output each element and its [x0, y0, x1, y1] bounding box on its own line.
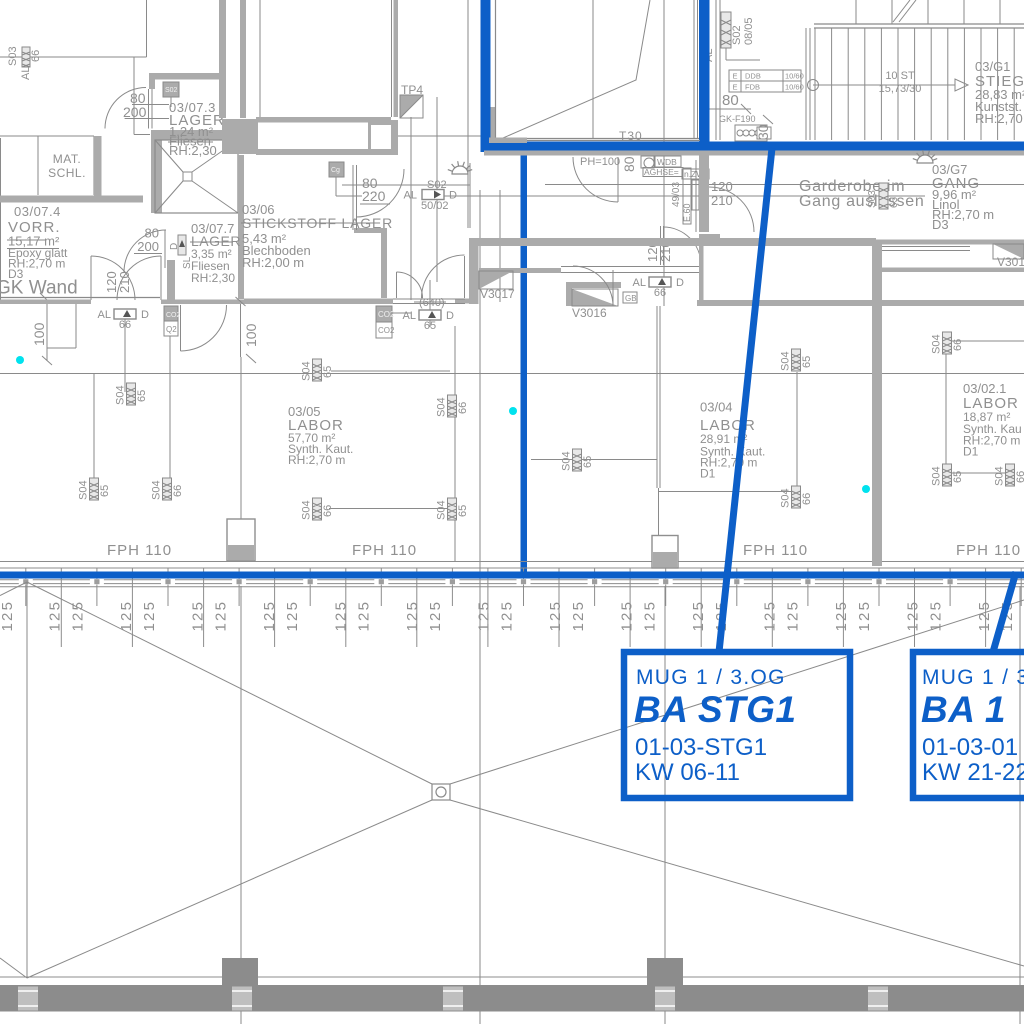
svg-text:125: 125	[690, 600, 707, 632]
svg-text:D: D	[141, 309, 149, 321]
svg-text:66: 66	[654, 287, 666, 299]
svg-text:RH:2,30: RH:2,30	[169, 143, 217, 158]
svg-text:10 ST: 10 ST	[885, 70, 915, 82]
svg-text:S04: S04	[78, 480, 90, 500]
svg-text:MUG 1 / 3.OG: MUG 1 / 3.OG	[636, 666, 786, 689]
svg-text:65: 65	[322, 366, 334, 378]
svg-text:125: 125	[47, 600, 64, 632]
svg-text:MUG 1 / 3: MUG 1 / 3	[922, 666, 1024, 689]
svg-text:FPH 110: FPH 110	[352, 542, 417, 559]
svg-text:66: 66	[172, 485, 184, 497]
svg-text:Gang auslassen: Gang auslassen	[799, 193, 924, 210]
svg-text:RH:2,70 m: RH:2,70 m	[975, 111, 1024, 126]
svg-text:66: 66	[457, 402, 469, 414]
svg-text:S04: S04	[994, 466, 1006, 486]
svg-text:S04: S04	[780, 351, 792, 371]
svg-text:125: 125	[905, 600, 922, 632]
svg-text:125: 125	[785, 600, 802, 632]
svg-text:D: D	[449, 190, 457, 202]
svg-text:V3013: V3013	[997, 255, 1024, 269]
svg-text:E: E	[732, 72, 737, 81]
svg-text:125: 125	[856, 600, 873, 632]
svg-text:PH=100: PH=100	[580, 156, 620, 168]
svg-text:66: 66	[801, 493, 813, 505]
svg-text:125: 125	[190, 600, 207, 632]
svg-text:220: 220	[362, 188, 386, 204]
svg-text:200: 200	[137, 239, 159, 254]
svg-text:08/05: 08/05	[743, 17, 755, 45]
svg-text:125: 125	[833, 600, 850, 632]
svg-text:KW 21-22: KW 21-22	[922, 759, 1024, 786]
svg-text:AL: AL	[20, 67, 32, 80]
svg-text:S04: S04	[931, 334, 943, 354]
svg-text:S04: S04	[436, 397, 448, 417]
svg-text:S04: S04	[151, 480, 163, 500]
svg-text:03/G1: 03/G1	[975, 59, 1010, 74]
svg-text:65: 65	[889, 196, 900, 208]
svg-text:66: 66	[322, 505, 334, 517]
svg-text:30: 30	[755, 124, 771, 140]
svg-text:66: 66	[119, 319, 131, 331]
svg-text:03/07.4: 03/07.4	[14, 204, 61, 219]
svg-text:66: 66	[30, 50, 42, 62]
svg-text:S04: S04	[931, 466, 943, 486]
svg-text:FPH 110: FPH 110	[743, 542, 808, 559]
svg-text:CO2: CO2	[378, 310, 395, 319]
svg-text:210: 210	[117, 271, 132, 293]
svg-text:80: 80	[621, 156, 637, 172]
svg-text:125: 125	[499, 600, 516, 632]
svg-text:15,73/30: 15,73/30	[879, 83, 922, 95]
svg-text:MAT.: MAT.	[53, 152, 81, 166]
svg-text:D1: D1	[700, 467, 716, 481]
svg-text:S04: S04	[561, 451, 573, 471]
svg-text:FPH 110: FPH 110	[956, 542, 1021, 559]
svg-text:AL: AL	[98, 309, 111, 321]
svg-text:65: 65	[582, 456, 594, 468]
svg-text:E: E	[732, 83, 737, 92]
svg-text:125: 125	[762, 600, 779, 632]
svg-text:S04: S04	[780, 488, 792, 508]
svg-text:Cg: Cg	[331, 167, 340, 174]
svg-text:Q2: Q2	[166, 325, 177, 334]
svg-text:S04: S04	[115, 385, 127, 405]
svg-text:65: 65	[952, 471, 964, 483]
svg-text:RH:2,70 m: RH:2,70 m	[288, 453, 345, 467]
svg-text:50/02: 50/02	[421, 200, 449, 212]
svg-text:125: 125	[284, 600, 301, 632]
svg-text:100: 100	[31, 322, 47, 346]
svg-text:SCHL.: SCHL.	[48, 166, 86, 180]
svg-text:AL: AL	[403, 310, 416, 322]
svg-text:S03: S03	[7, 46, 19, 66]
svg-text:10/60: 10/60	[785, 72, 804, 81]
svg-text:125: 125	[404, 600, 421, 632]
svg-text:125: 125	[0, 600, 16, 632]
svg-text:GB: GB	[625, 294, 637, 303]
svg-text:D: D	[676, 277, 684, 289]
svg-text:FPH 110: FPH 110	[107, 542, 172, 559]
svg-text:GK-F190: GK-F190	[719, 114, 756, 124]
svg-text:RH:2,00 m: RH:2,00 m	[242, 255, 304, 270]
svg-text:125: 125	[118, 600, 135, 632]
svg-text:D: D	[446, 310, 454, 322]
svg-text:CO2: CO2	[166, 312, 181, 319]
svg-text:125: 125	[570, 600, 587, 632]
svg-text:10/60: 10/60	[785, 83, 804, 92]
svg-text:S04: S04	[301, 361, 313, 381]
svg-text:200: 200	[123, 104, 147, 120]
svg-text:BA 1: BA 1	[921, 689, 1006, 730]
svg-text:65: 65	[136, 390, 148, 402]
svg-text:AL: AL	[404, 190, 417, 202]
svg-text:RH:2,30: RH:2,30	[191, 271, 235, 285]
svg-text:01-03-STG1: 01-03-STG1	[635, 734, 767, 761]
svg-text:S02: S02	[165, 87, 178, 94]
svg-text:125: 125	[141, 600, 158, 632]
svg-text:125: 125	[427, 600, 444, 632]
svg-text:125: 125	[333, 600, 350, 632]
svg-text:49/03: 49/03	[671, 182, 682, 207]
svg-text:80: 80	[722, 92, 739, 109]
svg-text:(640): (640)	[419, 297, 445, 309]
svg-text:210: 210	[711, 193, 733, 208]
svg-text:66: 66	[952, 339, 964, 351]
svg-text:BA STG1: BA STG1	[634, 689, 796, 730]
svg-text:E.60: E.60	[682, 203, 692, 222]
svg-text:125: 125	[476, 600, 493, 632]
svg-text:03/04: 03/04	[700, 400, 733, 415]
svg-text:120: 120	[711, 179, 733, 194]
svg-text:125: 125	[976, 600, 993, 632]
svg-text:WDB: WDB	[657, 157, 677, 167]
svg-text:KW 06-11: KW 06-11	[635, 759, 740, 786]
svg-text:V3016: V3016	[572, 306, 607, 320]
svg-text:AL: AL	[633, 277, 646, 289]
svg-text:125: 125	[619, 600, 636, 632]
svg-text:GK Wand: GK Wand	[0, 278, 78, 299]
svg-text:65: 65	[801, 356, 813, 368]
svg-text:AGHSE=: AGHSE=	[644, 167, 679, 177]
svg-text:100: 100	[243, 323, 259, 347]
svg-text:D1: D1	[963, 445, 979, 459]
svg-text:65: 65	[424, 320, 436, 332]
svg-text:FDB: FDB	[745, 83, 760, 92]
svg-text:66: 66	[1015, 471, 1024, 483]
svg-text:65: 65	[457, 505, 469, 517]
svg-text:S02: S02	[731, 25, 743, 45]
svg-text:125: 125	[356, 600, 373, 632]
svg-text:D3: D3	[932, 217, 949, 232]
svg-text:125: 125	[213, 600, 230, 632]
svg-text:S03: S03	[867, 190, 878, 208]
svg-text:V3017: V3017	[480, 287, 515, 301]
svg-text:01-03-01: 01-03-01	[922, 734, 1018, 761]
svg-text:125: 125	[547, 600, 564, 632]
svg-text:S04: S04	[436, 500, 448, 520]
svg-text:S04: S04	[301, 500, 313, 520]
svg-text:CO2: CO2	[378, 326, 395, 335]
svg-text:125: 125	[261, 600, 278, 632]
svg-text:125: 125	[642, 600, 659, 632]
svg-text:DDB: DDB	[745, 72, 761, 81]
svg-text:65: 65	[99, 485, 111, 497]
svg-text:D: D	[169, 243, 180, 250]
svg-text:03/02.1: 03/02.1	[963, 381, 1006, 396]
